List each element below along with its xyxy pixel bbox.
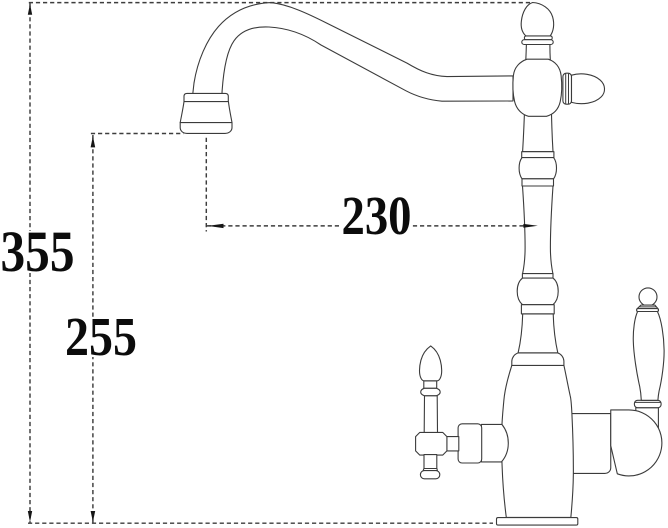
svg-text:255: 255 (65, 306, 137, 367)
svg-text:355: 355 (1, 219, 75, 284)
svg-text:230: 230 (342, 185, 412, 246)
